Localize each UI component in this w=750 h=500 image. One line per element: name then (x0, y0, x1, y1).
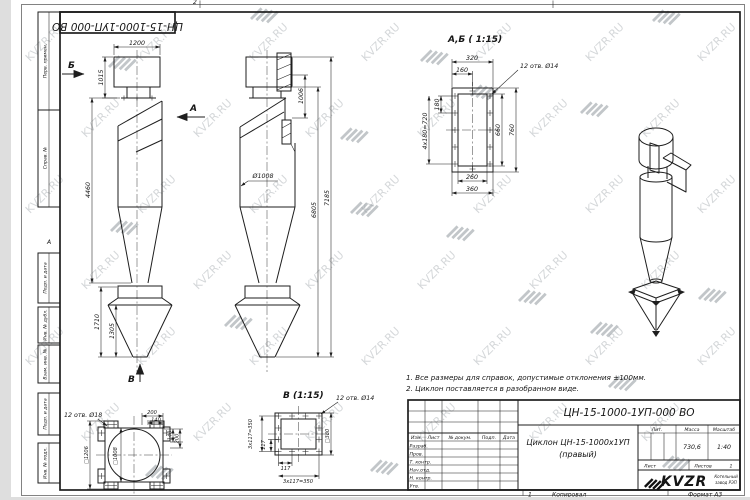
dim-1200: 1200 (129, 40, 145, 47)
note-line-2: 2. Циклон поставляется в разобранном вид… (406, 384, 579, 393)
view-arrow-b-label: Б (68, 61, 75, 71)
cyclone-drawing-svg: KVZR.RUKVZR.RUKVZR.RUKVZR.RUKVZR.RUKVZR.… (0, 0, 750, 500)
isometric-view (628, 128, 691, 337)
logo-caption-2: завод РЭП (715, 480, 737, 485)
dim-760: 760 (509, 124, 516, 136)
frame-stamp-label: Подп. и дата (43, 398, 49, 429)
dim-v140: 140 (168, 431, 174, 441)
col-izm: Изм. (411, 435, 422, 441)
watermark-text: KVZR.RU (415, 248, 459, 292)
row-tkontr: Т. контр. (410, 460, 432, 466)
dim-4x180: 4x180=720 (422, 112, 429, 149)
frame-stamp-label: Инв. № дубл. (43, 309, 49, 340)
sheets-value: 1 (730, 464, 733, 470)
sheet-label: Лист (643, 464, 656, 470)
watermark-text: KVZR.RU (135, 324, 179, 368)
dim-260: 260 (466, 174, 478, 181)
detail-ab-title: А,Б ( 1:15) (447, 35, 502, 45)
dim-1710: 1710 (94, 314, 101, 330)
dim-sq380: □380 (325, 429, 331, 444)
drawing-frame: Перв. примен. Справ. № Подп. и дата Инв.… (22, 0, 745, 496)
watermark-text: KVZR.RU (695, 324, 739, 368)
rotated-designation-box: ЦН-15-1000-1УП-000 ВО (52, 12, 183, 33)
detail-b-left-view: 12 отв. Ø18 200 140 140 200 □1206 □1008 (64, 410, 183, 494)
row-nkontr: Н. контр. (410, 476, 432, 482)
zone-top-label: 2 (193, 0, 197, 6)
scale-value: 1:40 (717, 444, 731, 451)
dim-117-bottom: 117 (281, 466, 291, 472)
watermark-text: KVZR.RU (639, 248, 683, 292)
frame-stamp-label: Взам. инв. № (43, 348, 49, 379)
watermark-text: KVZR.RU (191, 248, 235, 292)
logo-text: KVZR (661, 474, 708, 490)
dim-sq1206: □1206 (84, 445, 90, 464)
watermark-text: KVZR.RU (135, 172, 179, 216)
dim-3x117-bottom: 3x117=350 (283, 479, 313, 485)
dim-d1008: Ø1008 (252, 172, 274, 180)
watermark-text: KVZR.RU (695, 20, 739, 64)
dim-7185: 7185 (324, 190, 331, 206)
watermark-text: KVZR.RU (191, 96, 235, 140)
watermark-text: KVZR.RU (359, 20, 403, 64)
dim-6805: 6805 (311, 202, 318, 218)
mass-value: 730,6 (683, 444, 701, 451)
detail-ab-holes-label: 12 отв. Ø14 (520, 62, 558, 70)
frame-stamp-label: Инв. № подл. (43, 447, 49, 479)
drawing-sheet: KVZR.RUKVZR.RUKVZR.RUKVZR.RUKVZR.RUKVZR.… (0, 0, 750, 500)
title-name-line2: (правый) (559, 450, 597, 459)
rotated-designation-text: ЦН-15-1000-1УП-000 ВО (52, 20, 183, 32)
col-data: Дата (502, 435, 515, 441)
sheet-left-margin (0, 0, 11, 500)
watermark-text: KVZR.RU (583, 172, 627, 216)
watermark-text: KVZR.RU (303, 96, 347, 140)
dim-160: 160 (456, 67, 468, 74)
title-name-line1: Циклон ЦН-15-1000х1УП (526, 438, 629, 447)
dim-200: 200 (147, 410, 157, 416)
dim-180: 180 (434, 98, 441, 110)
title-block: ЦН-15-1000-1УП-000 ВО Циклон ЦН-15-1000х… (408, 400, 740, 495)
dim-1015: 1015 (98, 69, 105, 85)
view-arrow-a-label: А (189, 104, 197, 114)
watermark-text: KVZR.RU (583, 20, 627, 64)
watermark-text: KVZR.RU (695, 172, 739, 216)
watermark-text: KVZR.RU (79, 400, 123, 444)
watermark-text: KVZR.RU (303, 248, 347, 292)
watermark-text: KVZR.RU (527, 96, 571, 140)
scale-label: Масштаб (713, 427, 735, 433)
detail-b-holes14-label: 12 отв. Ø14 (336, 394, 374, 402)
dim-1305: 1305 (109, 323, 116, 339)
front-view: Б А В 1200 1015 4460 1710 1305 (62, 40, 205, 385)
watermark-text: KVZR.RU (527, 248, 571, 292)
watermark-text: KVZR.RU (639, 96, 683, 140)
watermark-text: KVZR.RU (247, 324, 291, 368)
row-prov: Пров. (410, 452, 424, 458)
row-nachotd: Нач.отд. (410, 468, 431, 474)
watermark-text: KVZR.RU (471, 324, 515, 368)
watermark-text: KVZR.RU (79, 96, 123, 140)
dim-140: 140 (151, 418, 161, 424)
dim-660: 660 (495, 124, 502, 136)
dim-v200: 200 (175, 434, 181, 444)
frame-stamp-label: Перв. примен. (43, 44, 49, 79)
dim-360: 360 (466, 186, 478, 193)
notes: 1. Все размеры для справок, допустимые о… (406, 373, 646, 393)
mass-label: Масса (685, 427, 700, 433)
view-arrow-v-label: В (128, 375, 135, 385)
dim-320: 320 (466, 55, 478, 62)
dim-4460: 4460 (85, 182, 92, 198)
detail-b-holes18-label: 12 отв. Ø18 (64, 411, 102, 419)
zone-left-label: А (46, 239, 51, 246)
frame-stamp-column: Перв. примен. Справ. № Подп. и дата Инв.… (38, 12, 60, 483)
dim-3x117-left: 3x117=350 (248, 419, 254, 449)
row-utv: Утв. (410, 484, 420, 490)
watermark-text: KVZR.RU (191, 400, 235, 444)
inlet-flange-hatched (277, 53, 291, 91)
lit-label: Лит. (651, 427, 663, 433)
dim-sq1008: □1008 (113, 446, 119, 465)
col-list: Лист (427, 435, 440, 441)
logo-caption-1: Котельный (714, 474, 738, 479)
col-podp: Подп. (482, 435, 496, 441)
side-flange-tab (282, 120, 295, 152)
watermark-text: KVZR.RU (247, 20, 291, 64)
row-razrab: Разраб. (410, 444, 428, 450)
dim-1006: 1006 (298, 88, 305, 104)
frame-stamp-label: Подп. и дата (43, 262, 49, 293)
watermark-text: KVZR.RU (79, 248, 123, 292)
watermark-text: KVZR.RU (359, 324, 403, 368)
frame-stamp-label: Справ. № (43, 147, 49, 170)
dim-117-left: 117 (261, 439, 267, 449)
col-ndoc: № докум. (447, 435, 471, 441)
detail-b-title: В (1:15) (283, 391, 324, 401)
sheets-label: Листов (693, 464, 712, 470)
note-line-1: 1. Все размеры для справок, допустимые о… (406, 373, 646, 382)
title-designation: ЦН-15-1000-1УП-000 ВО (563, 407, 694, 419)
